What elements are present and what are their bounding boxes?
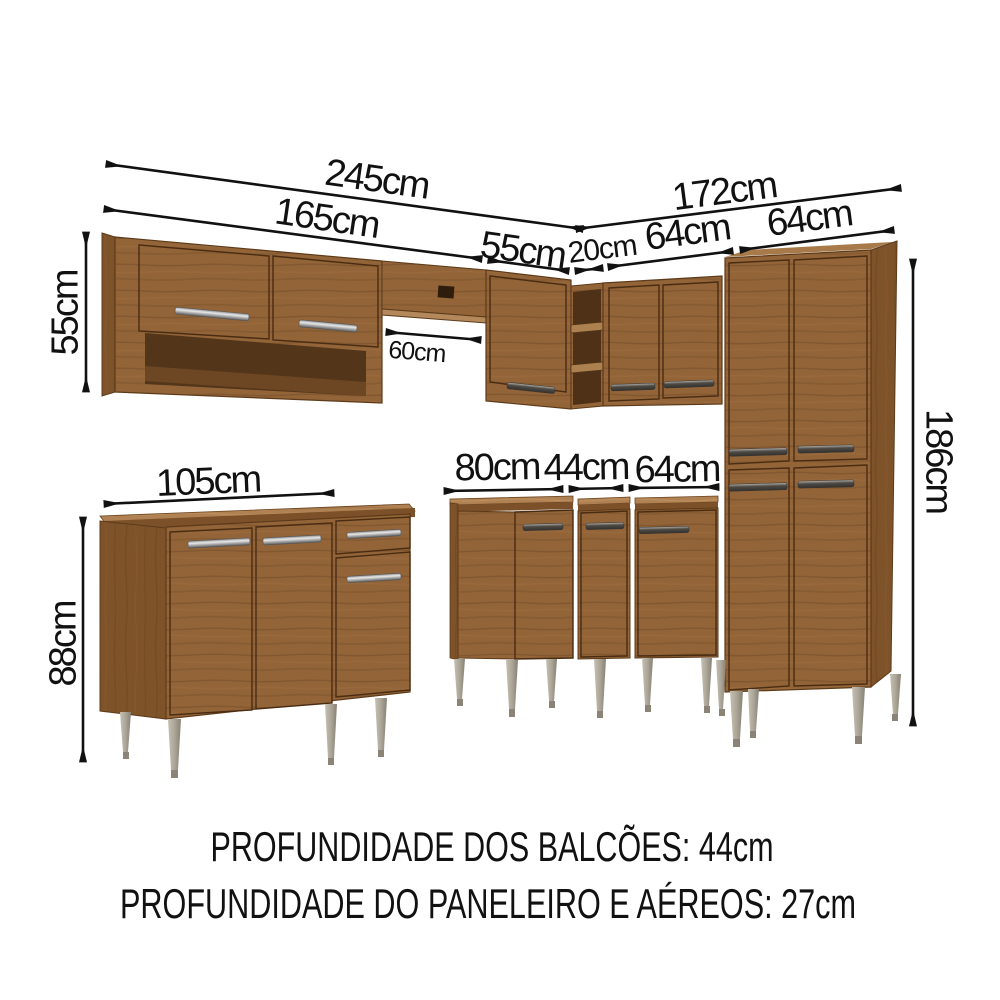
svg-text:PROFUNDIDADE DOS BALCÕES: 44cm: PROFUNDIDADE DOS BALCÕES: 44cm [211, 823, 774, 870]
svg-text:88cm: 88cm [43, 601, 85, 686]
svg-text:64cm: 64cm [634, 448, 720, 491]
svg-text:186cm: 186cm [917, 409, 959, 513]
svg-text:60cm: 60cm [387, 336, 446, 368]
svg-text:80cm: 80cm [454, 446, 540, 489]
svg-text:PROFUNDIDADE DO PANELEIRO E AÉ: PROFUNDIDADE DO PANELEIRO E AÉREOS: 27cm [120, 880, 856, 927]
svg-text:105cm: 105cm [155, 458, 261, 505]
svg-text:55cm: 55cm [45, 270, 87, 355]
svg-text:44cm: 44cm [543, 446, 629, 489]
